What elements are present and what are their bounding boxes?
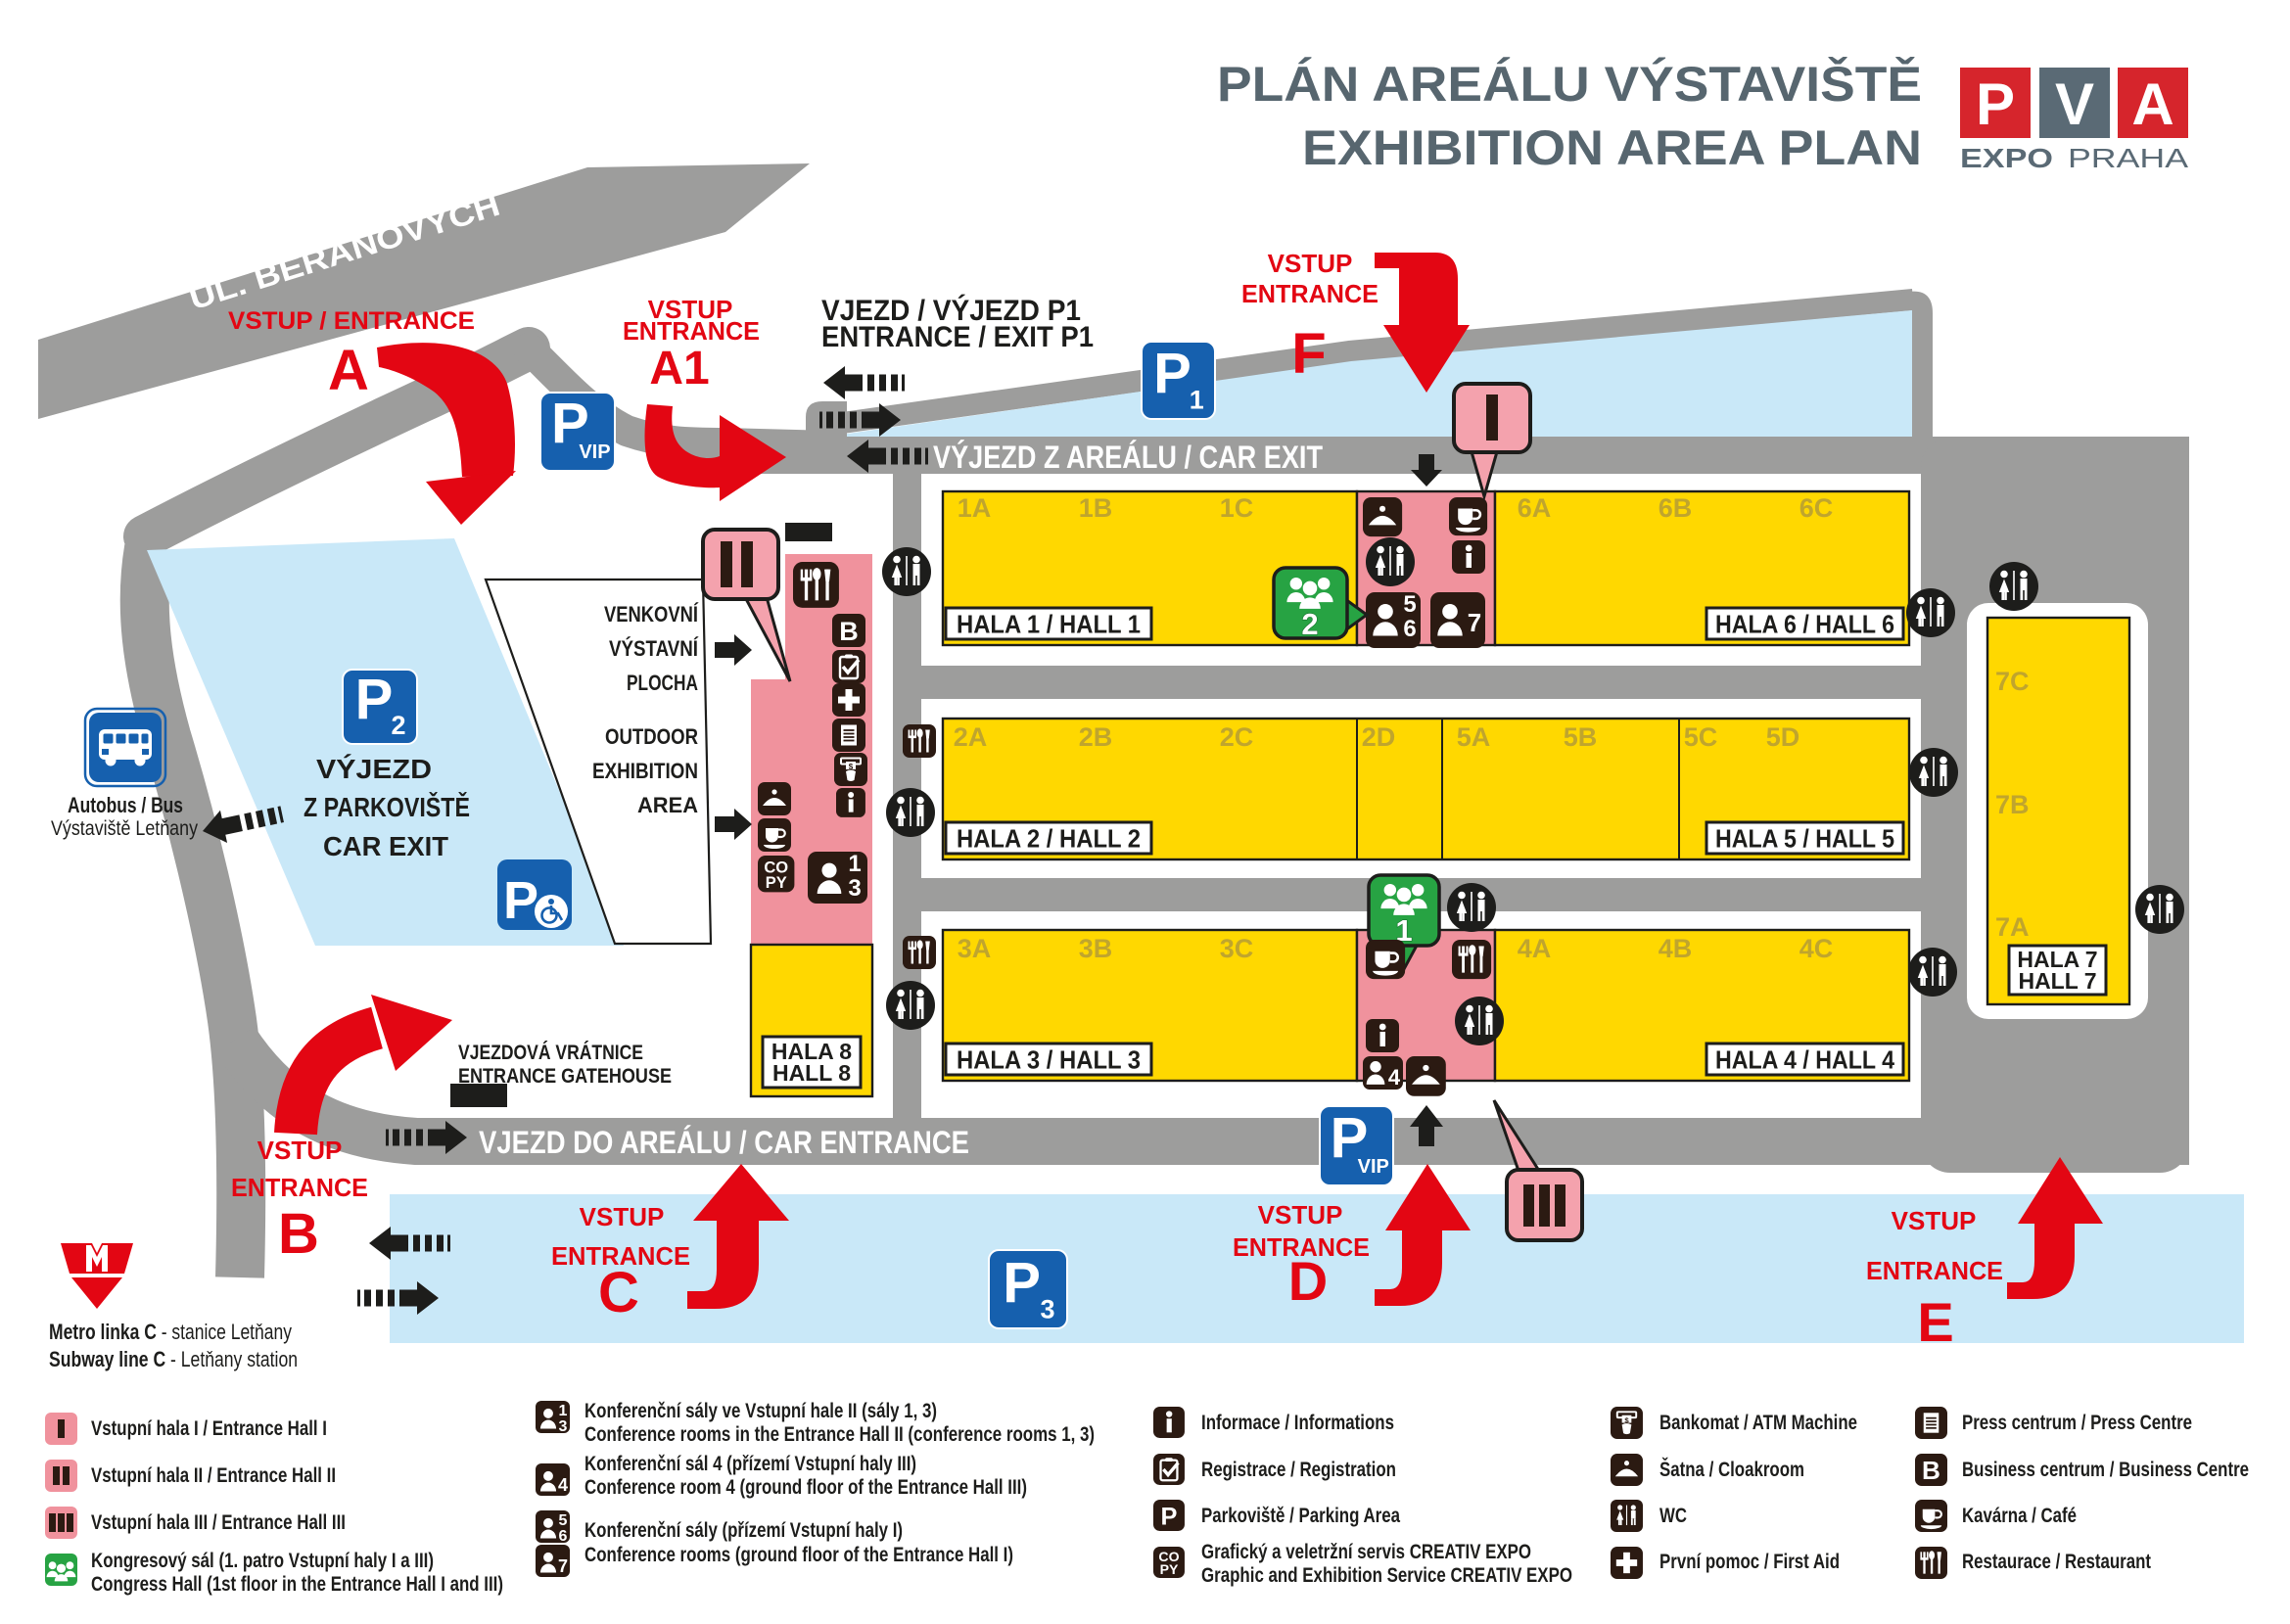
svg-text:2D: 2D bbox=[1362, 722, 1396, 752]
svg-text:Congress Hall (1st floor in th: Congress Hall (1st floor in the Entrance… bbox=[91, 1573, 503, 1596]
svg-text:3C: 3C bbox=[1220, 934, 1254, 963]
svg-text:VJEZD DO AREÁLU / CAR ENTRANCE: VJEZD DO AREÁLU / CAR ENTRANCE bbox=[479, 1125, 969, 1160]
svg-text:VIP: VIP bbox=[1358, 1156, 1389, 1178]
svg-text:VSTUP: VSTUP bbox=[580, 1202, 665, 1231]
svg-text:4A: 4A bbox=[1518, 934, 1552, 963]
svg-text:Grafický a veletržní servis CR: Grafický a veletržní servis CREATIV EXPO bbox=[1201, 1541, 1531, 1563]
svg-text:B: B bbox=[278, 1202, 319, 1266]
svg-text:Subway line C - Letňany statio: Subway line C - Letňany station bbox=[49, 1347, 298, 1371]
svg-text:První pomoc / First Aid: První pomoc / First Aid bbox=[1659, 1551, 1840, 1573]
svg-text:5C: 5C bbox=[1684, 722, 1718, 752]
svg-text:EXPO: EXPO bbox=[1960, 143, 2053, 173]
svg-text:Výstaviště Letňany: Výstaviště Letňany bbox=[51, 817, 198, 840]
svg-text:F: F bbox=[1291, 322, 1326, 386]
svg-text:Registrace / Registration: Registrace / Registration bbox=[1201, 1459, 1396, 1481]
svg-text:4B: 4B bbox=[1659, 934, 1693, 963]
svg-text:3: 3 bbox=[1040, 1295, 1054, 1324]
svg-text:3: 3 bbox=[848, 875, 861, 902]
svg-text:P: P bbox=[503, 871, 538, 930]
svg-text:PRAHA: PRAHA bbox=[2068, 143, 2188, 173]
svg-text:1: 1 bbox=[848, 851, 861, 877]
svg-text:VJEZDOVÁ VRÁTNICE: VJEZDOVÁ VRÁTNICE bbox=[458, 1042, 643, 1064]
svg-text:1C: 1C bbox=[1220, 493, 1254, 523]
svg-text:Konferenční sály ve Vstupní ha: Konferenční sály ve Vstupní hale II (sál… bbox=[584, 1400, 937, 1422]
svg-text:1: 1 bbox=[559, 1403, 568, 1419]
svg-text:Press centrum / Press Centre: Press centrum / Press Centre bbox=[1962, 1412, 2192, 1434]
svg-text:3A: 3A bbox=[958, 934, 992, 963]
svg-text:6: 6 bbox=[1403, 616, 1416, 642]
svg-text:ENTRANCE: ENTRANCE bbox=[231, 1173, 368, 1202]
svg-text:Informace / Informations: Informace / Informations bbox=[1201, 1412, 1394, 1434]
svg-text:VENKOVNÍ: VENKOVNÍ bbox=[604, 602, 699, 626]
svg-text:D: D bbox=[1288, 1250, 1328, 1312]
svg-text:HALA 3 / HALL 3: HALA 3 / HALL 3 bbox=[957, 1044, 1141, 1074]
svg-text:VIP: VIP bbox=[579, 441, 610, 463]
svg-text:A: A bbox=[2131, 71, 2173, 137]
svg-text:6: 6 bbox=[559, 1528, 568, 1545]
svg-text:Bankomat / ATM Machine: Bankomat / ATM Machine bbox=[1659, 1412, 1857, 1434]
svg-text:P: P bbox=[1153, 342, 1192, 405]
svg-text:A: A bbox=[328, 339, 369, 402]
svg-text:2: 2 bbox=[391, 711, 405, 740]
svg-text:Kavárna / Café: Kavárna / Café bbox=[1962, 1505, 2077, 1527]
svg-text:AREA: AREA bbox=[637, 793, 698, 817]
svg-text:WC: WC bbox=[1659, 1505, 1687, 1527]
svg-text:V: V bbox=[2055, 71, 2094, 137]
svg-text:Vstupní hala III / Entrance Ha: Vstupní hala III / Entrance Hall III bbox=[91, 1511, 346, 1534]
svg-text:6B: 6B bbox=[1659, 493, 1693, 523]
svg-text:OUTDOOR: OUTDOOR bbox=[605, 724, 698, 749]
svg-text:HALA 1 / HALL 1: HALA 1 / HALL 1 bbox=[957, 609, 1141, 638]
svg-text:PLÁN AREÁLU VÝSTAVIŠTĚ: PLÁN AREÁLU VÝSTAVIŠTĚ bbox=[1217, 56, 1922, 112]
svg-text:P: P bbox=[355, 668, 394, 731]
svg-text:PLOCHA: PLOCHA bbox=[627, 671, 698, 695]
svg-text:2B: 2B bbox=[1079, 722, 1113, 752]
svg-text:Konferenční sál 4 (přízemí Vst: Konferenční sál 4 (přízemí Vstupní haly … bbox=[584, 1453, 916, 1475]
svg-text:ENTRANCE: ENTRANCE bbox=[1241, 279, 1379, 308]
svg-text:Conference rooms in the Entran: Conference rooms in the Entrance Hall II… bbox=[584, 1423, 1095, 1446]
svg-text:Vstupní hala II / Entrance Hal: Vstupní hala II / Entrance Hall II bbox=[91, 1464, 336, 1487]
svg-text:3B: 3B bbox=[1079, 934, 1113, 963]
svg-text:4C: 4C bbox=[1799, 934, 1834, 963]
svg-text:ENTRANCE: ENTRANCE bbox=[623, 316, 760, 346]
svg-text:Kongresový sál (1. patro Vstup: Kongresový sál (1. patro Vstupní haly I … bbox=[91, 1550, 434, 1572]
svg-text:1A: 1A bbox=[958, 493, 992, 523]
svg-text:7: 7 bbox=[1468, 608, 1481, 637]
svg-text:5B: 5B bbox=[1564, 722, 1598, 752]
svg-text:2C: 2C bbox=[1220, 722, 1254, 752]
svg-text:5: 5 bbox=[1403, 591, 1416, 618]
svg-text:E: E bbox=[1917, 1291, 1953, 1353]
svg-text:ENTRANCE GATEHOUSE: ENTRANCE GATEHOUSE bbox=[458, 1065, 672, 1088]
svg-text:Vstupní hala I / Entrance Hall: Vstupní hala I / Entrance Hall I bbox=[91, 1417, 327, 1440]
svg-text:5A: 5A bbox=[1457, 722, 1491, 752]
svg-text:VSTUP: VSTUP bbox=[1892, 1206, 1977, 1235]
svg-text:6C: 6C bbox=[1799, 493, 1834, 523]
svg-text:HALA 4 / HALL 4: HALA 4 / HALL 4 bbox=[1715, 1044, 1894, 1074]
svg-text:ENTRANCE / EXIT P1: ENTRANCE / EXIT P1 bbox=[821, 321, 1094, 353]
svg-text:HALA 6 / HALL 6: HALA 6 / HALL 6 bbox=[1715, 609, 1894, 638]
svg-text:Business centrum / Business Ce: Business centrum / Business Centre bbox=[1962, 1459, 2249, 1481]
svg-text:Metro linka C - stanice Letňan: Metro linka C - stanice Letňany bbox=[49, 1320, 292, 1344]
svg-text:CAR EXIT: CAR EXIT bbox=[323, 831, 448, 861]
svg-text:P: P bbox=[1003, 1251, 1041, 1315]
svg-text:A1: A1 bbox=[649, 343, 709, 394]
svg-text:7C: 7C bbox=[1995, 667, 2030, 696]
svg-text:HALA 5 / HALL 5: HALA 5 / HALL 5 bbox=[1715, 823, 1894, 853]
svg-text:HALA 2 / HALL 2: HALA 2 / HALL 2 bbox=[957, 823, 1141, 853]
svg-text:Konferenční sály (přízemí Vstu: Konferenční sály (přízemí Vstupní haly I… bbox=[584, 1519, 903, 1542]
svg-text:7: 7 bbox=[558, 1556, 568, 1576]
svg-text:HALL 8: HALL 8 bbox=[772, 1060, 851, 1086]
svg-text:HALL 7: HALL 7 bbox=[2018, 968, 2096, 994]
svg-text:Graphic and Exhibition Service: Graphic and Exhibition Service CREATIV E… bbox=[1201, 1564, 1572, 1587]
svg-text:VÝJEZD Z AREÁLU / CAR EXIT: VÝJEZD Z AREÁLU / CAR EXIT bbox=[933, 440, 1323, 475]
svg-text:4: 4 bbox=[1388, 1065, 1401, 1090]
svg-text:Z PARKOVIŠTĚ: Z PARKOVIŠTĚ bbox=[304, 791, 470, 822]
svg-text:Conference rooms (ground floor: Conference rooms (ground floor of the En… bbox=[584, 1544, 1013, 1566]
svg-text:Autobus / Bus: Autobus / Bus bbox=[68, 793, 183, 817]
svg-text:P: P bbox=[1976, 71, 2015, 137]
svg-text:7A: 7A bbox=[1995, 912, 2030, 942]
svg-text:VSTUP: VSTUP bbox=[1268, 249, 1353, 278]
svg-text:Conference room 4 (ground floo: Conference room 4 (ground floor of the E… bbox=[584, 1476, 1027, 1499]
svg-text:C: C bbox=[598, 1261, 639, 1324]
svg-text:6A: 6A bbox=[1518, 493, 1552, 523]
svg-text:2: 2 bbox=[1301, 607, 1318, 641]
svg-text:1: 1 bbox=[1190, 386, 1204, 415]
svg-text:VÝJEZD: VÝJEZD bbox=[316, 754, 432, 784]
svg-text:1B: 1B bbox=[1079, 493, 1113, 523]
svg-text:VSTUP / ENTRANCE: VSTUP / ENTRANCE bbox=[228, 307, 475, 335]
svg-text:EXHIBITION: EXHIBITION bbox=[592, 759, 698, 783]
svg-text:Restaurace / Restaurant: Restaurace / Restaurant bbox=[1962, 1551, 2151, 1573]
svg-text:7B: 7B bbox=[1995, 790, 2030, 819]
svg-text:Parkoviště / Parking Area: Parkoviště / Parking Area bbox=[1201, 1505, 1400, 1527]
svg-text:Šatna / Cloakroom: Šatna / Cloakroom bbox=[1659, 1458, 1804, 1481]
svg-text:EXHIBITION AREA PLAN: EXHIBITION AREA PLAN bbox=[1302, 120, 1922, 175]
svg-text:VSTUP: VSTUP bbox=[1258, 1200, 1343, 1230]
svg-text:5: 5 bbox=[559, 1512, 568, 1529]
svg-text:3: 3 bbox=[559, 1418, 568, 1435]
svg-text:ENTRANCE: ENTRANCE bbox=[1866, 1256, 2003, 1285]
svg-text:VSTUP: VSTUP bbox=[257, 1136, 343, 1165]
svg-text:5D: 5D bbox=[1766, 722, 1800, 752]
svg-text:2A: 2A bbox=[954, 722, 988, 752]
svg-text:4: 4 bbox=[558, 1475, 568, 1495]
svg-text:VÝSTAVNÍ: VÝSTAVNÍ bbox=[609, 636, 699, 661]
